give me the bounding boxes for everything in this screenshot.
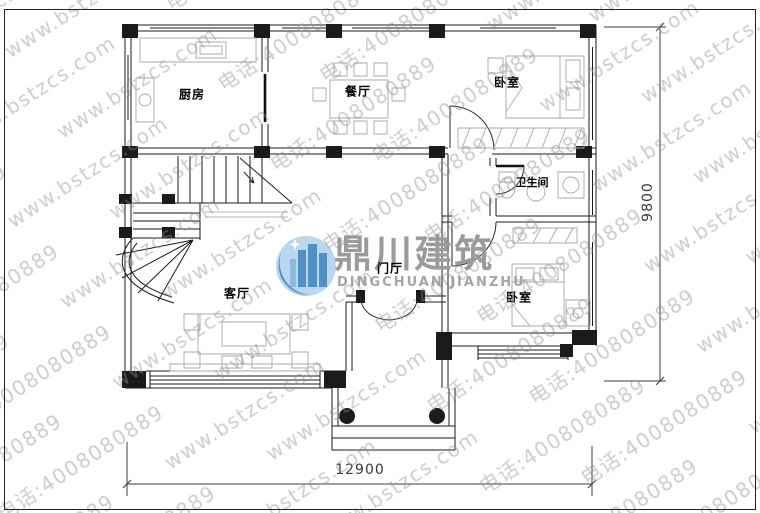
room-label-kitchen: 厨房 bbox=[179, 86, 205, 103]
floor-plan-sheet: 鼎川建筑 DINGCHUAN JIANZHU 厨房 餐厅 卧室 卫生间 客厅 门… bbox=[0, 0, 760, 513]
room-label-dining: 餐厅 bbox=[345, 83, 371, 100]
staircase bbox=[116, 156, 292, 303]
dingchuan-logo-icon bbox=[273, 233, 339, 299]
room-label-hall: 门厅 bbox=[377, 260, 403, 277]
entrance-porch bbox=[332, 388, 455, 450]
room-label-bathroom: 卫生间 bbox=[516, 174, 549, 190]
room-label-bedroom-bottom: 卧室 bbox=[506, 289, 532, 306]
walls bbox=[125, 25, 596, 388]
logo-text-cn: 鼎川建筑 bbox=[334, 233, 494, 275]
dimension-height-label: 9800 bbox=[640, 182, 656, 222]
dimension-width-label: 12900 bbox=[335, 462, 385, 478]
logo-text-en: DINGCHUAN JIANZHU bbox=[337, 275, 526, 290]
room-label-living: 客厅 bbox=[224, 285, 250, 302]
room-label-bedroom-top: 卧室 bbox=[494, 74, 520, 91]
